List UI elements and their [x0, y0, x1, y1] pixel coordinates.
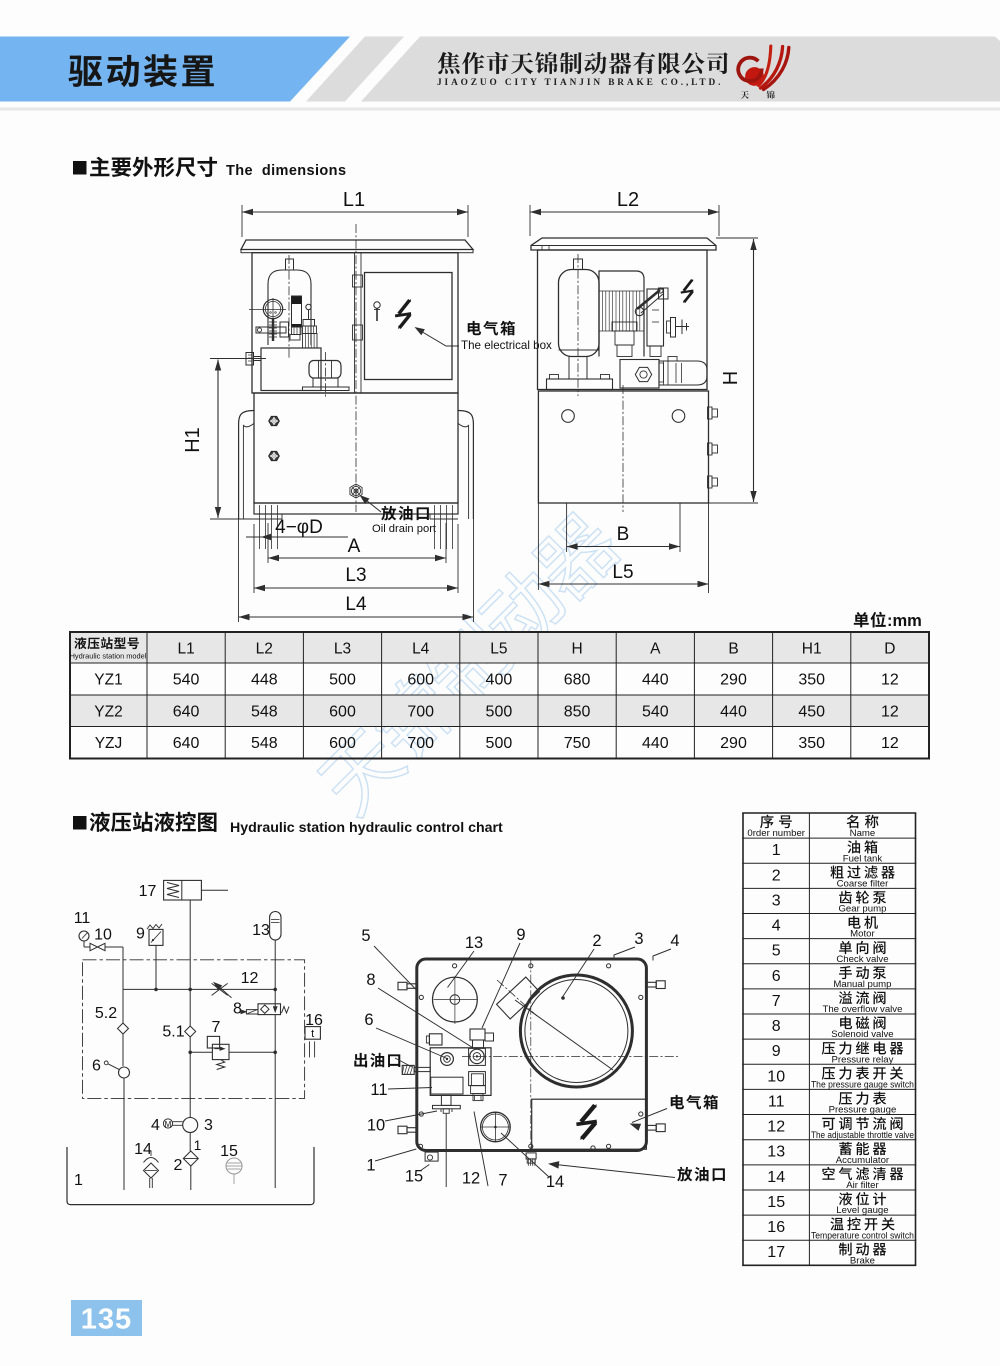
svg-text:5: 5 [772, 943, 781, 960]
svg-text:500: 500 [486, 735, 513, 752]
svg-text:6: 6 [772, 968, 781, 985]
svg-text:14: 14 [546, 1173, 564, 1191]
svg-text:3: 3 [772, 892, 781, 909]
svg-text:D: D [884, 641, 895, 658]
svg-text:7: 7 [212, 1019, 221, 1036]
svg-text:L5: L5 [612, 562, 633, 583]
svg-text:L3: L3 [345, 565, 366, 586]
svg-text:12: 12 [881, 703, 899, 720]
svg-text:290: 290 [720, 672, 747, 689]
svg-text:700: 700 [407, 703, 434, 720]
svg-text:540: 540 [642, 703, 669, 720]
svg-text:548: 548 [251, 703, 278, 720]
svg-text:Name: Name [850, 828, 876, 839]
svg-text:8: 8 [772, 1018, 781, 1035]
svg-text:The electrical box: The electrical box [461, 339, 552, 352]
svg-text:Oil drain port: Oil drain port [372, 523, 437, 535]
svg-text:12: 12 [881, 735, 899, 752]
svg-text:3: 3 [634, 930, 643, 948]
svg-text:Manual pump: Manual pump [833, 979, 891, 990]
svg-text:4: 4 [151, 1117, 160, 1134]
svg-text:540: 540 [173, 672, 200, 689]
svg-text:7: 7 [498, 1172, 507, 1190]
svg-text:640: 640 [173, 703, 200, 720]
svg-text:4: 4 [670, 932, 679, 950]
svg-text:6: 6 [364, 1011, 373, 1029]
svg-text:L2: L2 [256, 641, 273, 658]
svg-text:13: 13 [252, 922, 270, 939]
svg-text:The pressure gauge switch: The pressure gauge switch [811, 1080, 914, 1091]
svg-text:A: A [348, 536, 361, 557]
svg-text:350: 350 [798, 735, 825, 752]
svg-text:17: 17 [767, 1244, 785, 1261]
svg-text:2: 2 [174, 1157, 183, 1174]
svg-text:L4: L4 [345, 594, 367, 615]
svg-text:1: 1 [366, 1157, 375, 1175]
svg-text:14: 14 [767, 1169, 785, 1186]
svg-text:135: 135 [81, 1304, 132, 1336]
svg-text:440: 440 [642, 672, 669, 689]
svg-text:5: 5 [361, 927, 370, 945]
svg-text:Hydraulic station model: Hydraulic station model [70, 652, 147, 661]
svg-text:2: 2 [772, 867, 781, 884]
svg-text:YZ1: YZ1 [94, 672, 122, 689]
svg-text:H1: H1 [802, 641, 822, 658]
svg-text:L2: L2 [617, 189, 639, 211]
svg-text:12: 12 [881, 672, 899, 689]
svg-text:10: 10 [767, 1068, 785, 1085]
svg-text:350: 350 [798, 672, 825, 689]
svg-text:450: 450 [798, 703, 825, 720]
svg-text:Accumulator: Accumulator [836, 1155, 890, 1166]
svg-text:15: 15 [220, 1143, 238, 1160]
svg-text:440: 440 [642, 735, 669, 752]
svg-text:400: 400 [486, 672, 513, 689]
svg-text:15: 15 [767, 1194, 785, 1211]
svg-text:4: 4 [772, 918, 781, 935]
svg-text:1: 1 [74, 1172, 83, 1189]
svg-text:500: 500 [486, 703, 513, 720]
svg-text:L1: L1 [343, 189, 365, 211]
svg-text:Pressure relay: Pressure relay [832, 1054, 894, 1065]
svg-text:Solenoid valve: Solenoid valve [831, 1029, 893, 1040]
svg-text:1: 1 [772, 842, 781, 859]
svg-text:H: H [720, 371, 742, 385]
svg-text:Gear pump: Gear pump [838, 904, 886, 915]
svg-text:448: 448 [251, 672, 278, 689]
svg-text:12: 12 [241, 970, 259, 987]
svg-text:9: 9 [136, 926, 145, 943]
svg-text:600: 600 [407, 672, 434, 689]
svg-text:12: 12 [767, 1119, 785, 1136]
svg-text:t: t [311, 1028, 314, 1040]
svg-text:548: 548 [251, 735, 278, 752]
svg-text:600: 600 [329, 735, 356, 752]
svg-text:8: 8 [233, 1001, 242, 1018]
svg-text:12: 12 [462, 1170, 480, 1188]
svg-text:H1: H1 [182, 427, 204, 453]
svg-text:0rder number: 0rder number [747, 828, 805, 839]
svg-text:H: H [571, 641, 582, 658]
svg-text:10: 10 [94, 927, 112, 944]
svg-text:1: 1 [194, 1138, 202, 1153]
svg-text::mm: :mm [887, 612, 922, 630]
svg-text:The adjustable throttle valve: The adjustable throttle valve [811, 1130, 914, 1141]
svg-text:17: 17 [139, 883, 157, 900]
svg-text:11: 11 [74, 910, 91, 927]
svg-text:YZ2: YZ2 [94, 703, 122, 720]
svg-text:Coarse filter: Coarse filter [837, 878, 890, 889]
svg-text:16: 16 [767, 1219, 785, 1236]
svg-text:Check valve: Check valve [836, 954, 888, 965]
svg-text:Temperature control switch: Temperature control switch [811, 1230, 914, 1241]
svg-text:Pressure gauge: Pressure gauge [829, 1105, 897, 1116]
svg-text:600: 600 [329, 703, 356, 720]
svg-text:YZJ: YZJ [95, 735, 123, 752]
svg-text:The overflow valve: The overflow valve [822, 1004, 902, 1015]
svg-text:10: 10 [367, 1117, 385, 1135]
svg-text:L3: L3 [334, 641, 351, 658]
svg-text:13: 13 [465, 934, 483, 952]
svg-text:A: A [650, 641, 661, 658]
svg-text:500: 500 [329, 672, 356, 689]
svg-text:B: B [617, 524, 630, 545]
svg-text:L1: L1 [177, 641, 194, 658]
svg-text:700: 700 [407, 735, 434, 752]
svg-text:440: 440 [720, 703, 747, 720]
svg-text:M: M [165, 1120, 172, 1129]
svg-text:The dimensions: The dimensions [226, 163, 346, 179]
svg-text:4−φD: 4−φD [275, 517, 323, 538]
svg-text:2: 2 [592, 932, 601, 950]
svg-text:B: B [728, 641, 738, 658]
svg-text:640: 640 [173, 735, 200, 752]
svg-text:14: 14 [134, 1141, 152, 1158]
svg-text:3: 3 [204, 1117, 213, 1134]
svg-text:Air filter: Air filter [846, 1180, 879, 1191]
svg-text:7: 7 [772, 993, 781, 1010]
svg-text:5.2: 5.2 [95, 1005, 117, 1022]
svg-text:11: 11 [370, 1081, 387, 1099]
svg-text:290: 290 [720, 735, 747, 752]
svg-text:Motor: Motor [850, 929, 875, 940]
svg-text:Brake: Brake [850, 1255, 875, 1266]
svg-text:13: 13 [767, 1144, 785, 1161]
svg-text:Hydraulic station hydraulic co: Hydraulic station hydraulic control char… [230, 820, 503, 836]
svg-text:9: 9 [772, 1043, 781, 1060]
svg-text:680: 680 [564, 672, 591, 689]
svg-text:5.1: 5.1 [162, 1024, 184, 1041]
svg-text:Fuel tank: Fuel tank [843, 853, 883, 864]
svg-text:Level gauge: Level gauge [836, 1205, 888, 1216]
svg-text:9: 9 [516, 926, 525, 944]
svg-text:11: 11 [768, 1093, 785, 1110]
svg-text:L5: L5 [490, 641, 507, 658]
svg-text:8: 8 [366, 971, 375, 989]
svg-text:JIAOZUO CITY TIANJIN BRAKE CO.: JIAOZUO CITY TIANJIN BRAKE CO.,LTD. [437, 78, 723, 88]
svg-text:850: 850 [564, 703, 591, 720]
svg-text:750: 750 [564, 735, 591, 752]
svg-text:6: 6 [92, 1058, 101, 1075]
svg-text:L4: L4 [412, 641, 430, 658]
